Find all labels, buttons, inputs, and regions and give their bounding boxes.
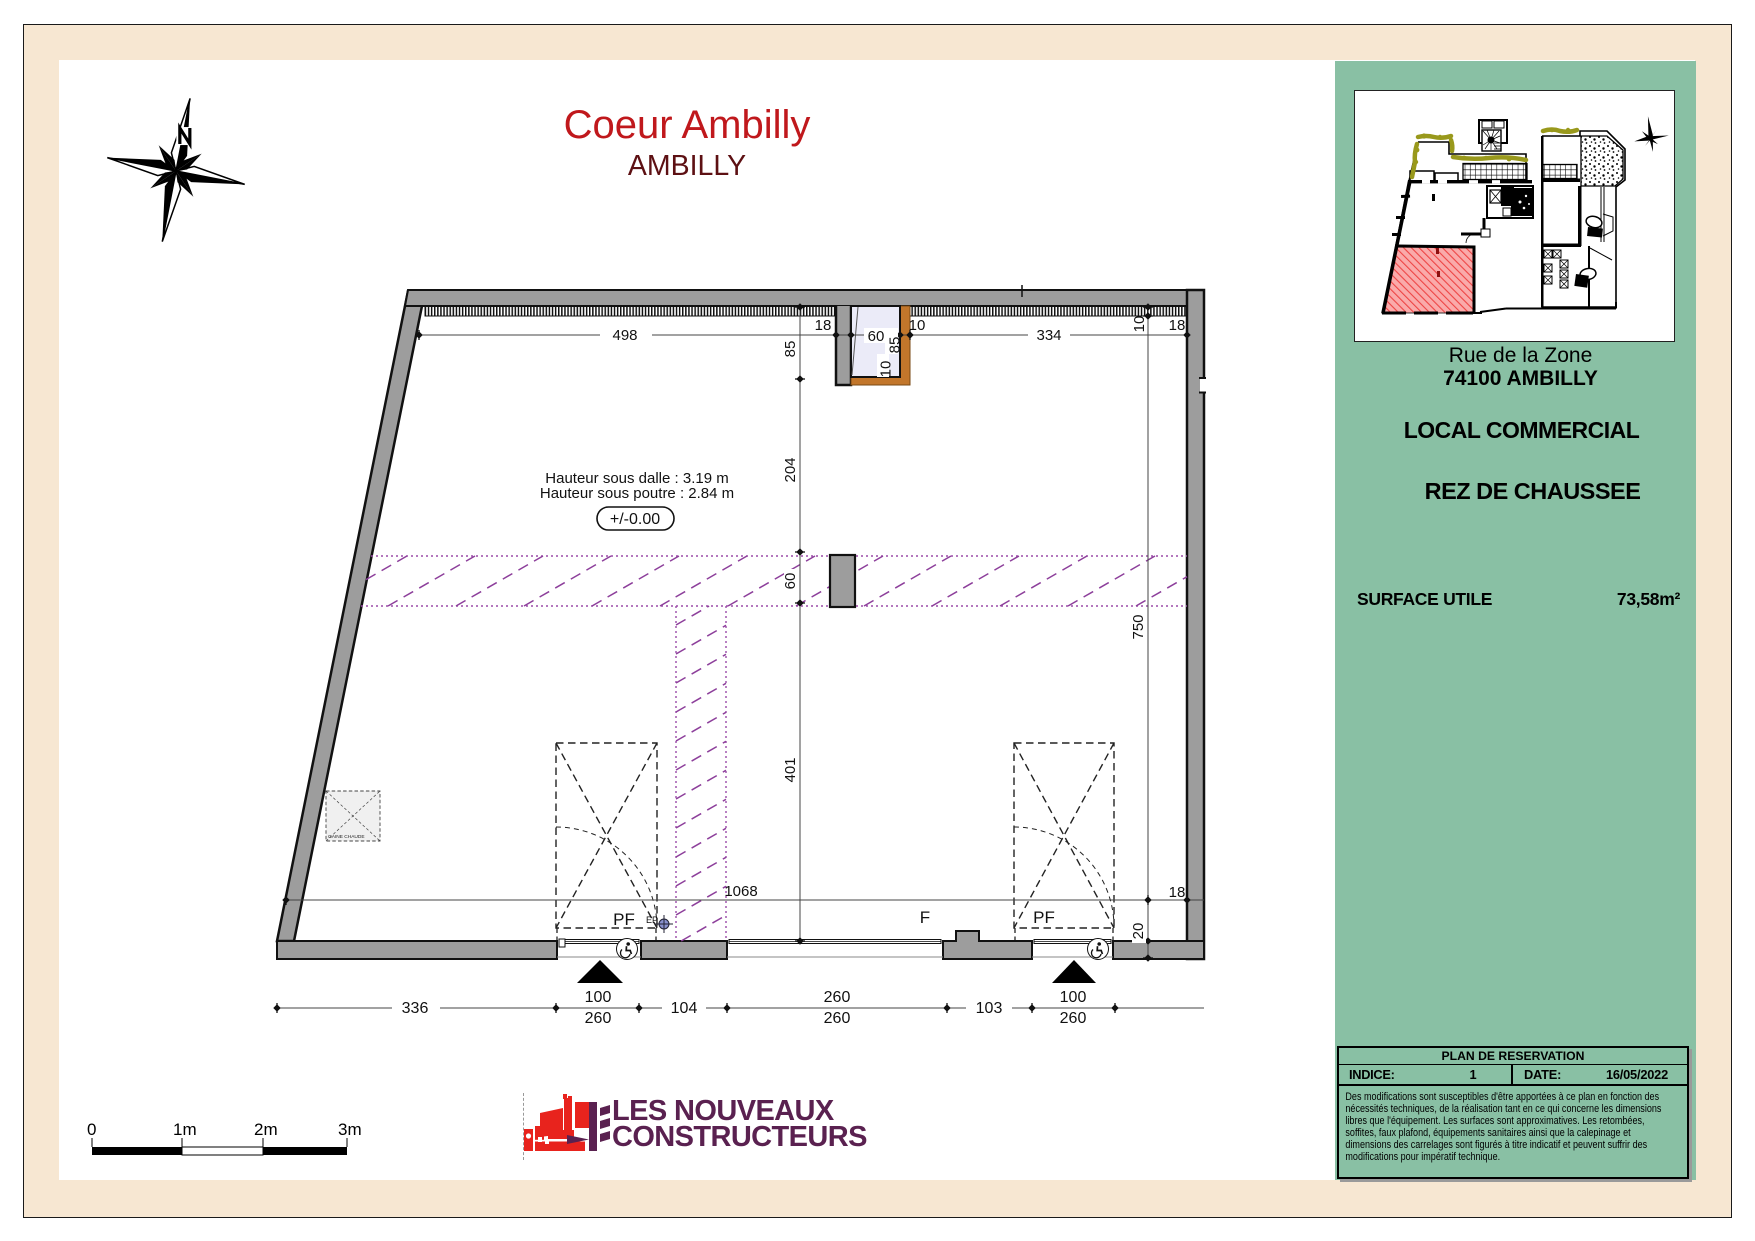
svg-text:260: 260 [1060, 1010, 1087, 1027]
svg-text:F: F [920, 908, 930, 927]
svg-text:10: 10 [1131, 316, 1148, 333]
svg-text:0: 0 [87, 1120, 96, 1139]
svg-text:20: 20 [1130, 923, 1147, 940]
svg-text:GAINE CHAUDE: GAINE CHAUDE [328, 834, 365, 840]
svg-text:60: 60 [782, 573, 799, 590]
svg-text:PF: PF [613, 910, 635, 929]
svg-text:60: 60 [868, 328, 885, 345]
svg-text:18: 18 [815, 317, 832, 334]
svg-text:204: 204 [782, 457, 799, 482]
svg-text:3m: 3m [338, 1120, 362, 1139]
svg-text:85: 85 [782, 341, 799, 358]
svg-text:336: 336 [402, 1000, 429, 1017]
svg-text:104: 104 [671, 1000, 698, 1017]
svg-text:750: 750 [1130, 614, 1147, 639]
svg-text:+/-0.00: +/-0.00 [610, 511, 660, 528]
svg-text:103: 103 [976, 1000, 1003, 1017]
svg-text:1068: 1068 [724, 883, 757, 900]
svg-text:401: 401 [782, 757, 799, 782]
svg-text:85: 85 [887, 337, 904, 354]
svg-text:498: 498 [612, 327, 637, 344]
svg-text:PF: PF [1033, 908, 1055, 927]
svg-text:260: 260 [824, 989, 851, 1006]
svg-text:260: 260 [585, 1010, 612, 1027]
svg-text:100: 100 [585, 989, 612, 1006]
svg-text:100: 100 [1060, 989, 1087, 1006]
svg-text:18: 18 [1169, 884, 1186, 901]
svg-text:260: 260 [824, 1010, 851, 1027]
svg-text:Hauteur sous poutre : 2.84 m: Hauteur sous poutre : 2.84 m [540, 485, 734, 502]
svg-text:1m: 1m [173, 1120, 197, 1139]
svg-text:10: 10 [878, 361, 895, 378]
svg-text:2m: 2m [254, 1120, 278, 1139]
svg-text:10: 10 [909, 317, 926, 334]
svg-text:18: 18 [1169, 317, 1186, 334]
svg-text:334: 334 [1036, 327, 1061, 344]
